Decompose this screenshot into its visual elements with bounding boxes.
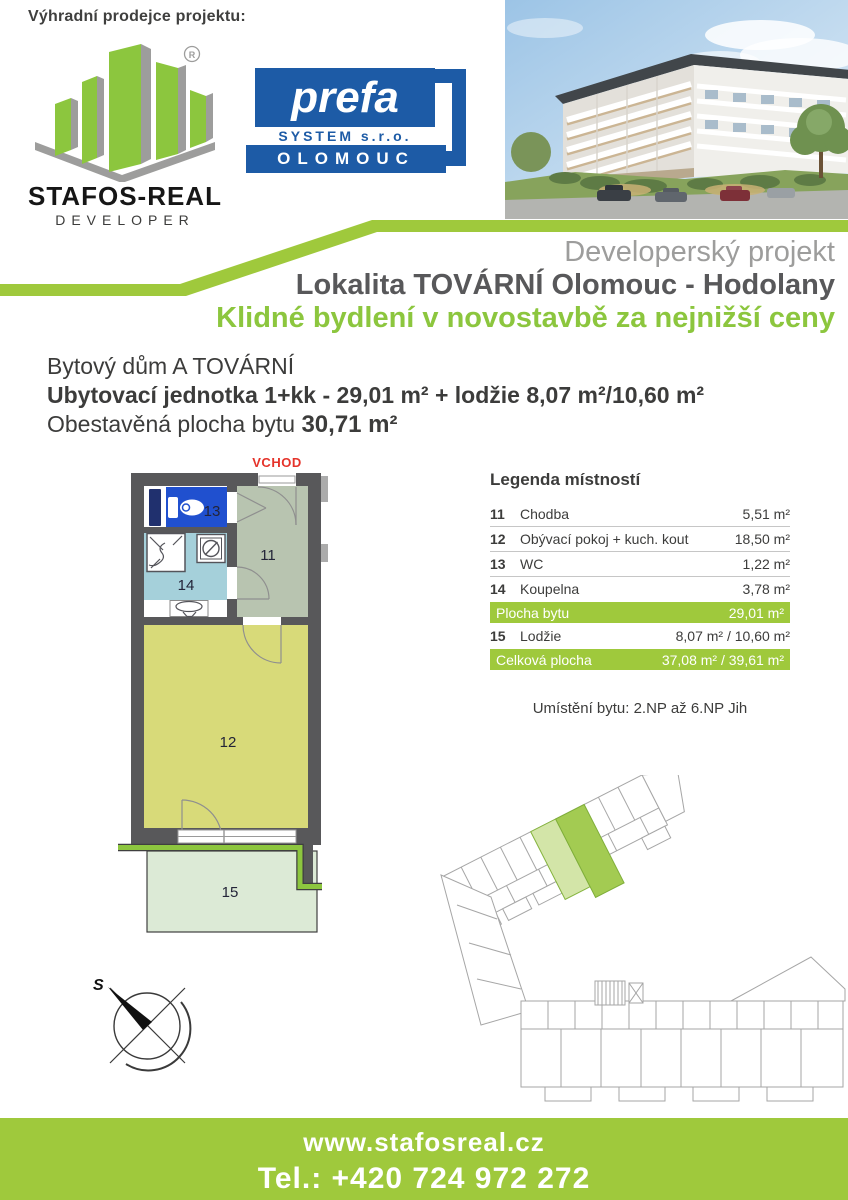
room-12-living [144, 625, 308, 828]
entry-door-frame [259, 476, 295, 483]
room-legend: Legenda místností 11 Chodba 5,51 m² 12 O… [490, 470, 790, 671]
legend-summary-total-area: Celková plocha 37,08 m² / 39,61 m² [490, 649, 790, 670]
boiler-icon [197, 535, 225, 563]
legend-row-15: 15 Lodžie 8,07 m² / 10,60 m² [490, 624, 790, 648]
placement-line: Umístění bytu: 2.NP až 6.NP Jih [490, 700, 790, 717]
phone-text: Tel.: +420 724 972 272 [0, 1162, 848, 1196]
enclosed-area-label: Obestavěná plocha bytu [47, 411, 295, 437]
title-block: Developerský projekt Lokalita TOVÁRNÍ Ol… [135, 236, 835, 335]
site-plan-lower-wing [521, 957, 845, 1101]
enclosed-area-line: Obestavěná plocha bytu 30,71 m² [47, 410, 704, 439]
legend-summary-apartment-area: Plocha bytu 29,01 m² [490, 602, 790, 623]
location-title: Lokalita TOVÁRNÍ Olomouc - Hodolany [135, 269, 835, 302]
unit-info-block: Bytový dům A TOVÁRNÍ Ubytovací jednotka … [47, 352, 704, 439]
legend-row-13: 13 WC 1,22 m² [490, 552, 790, 576]
legend-row-11: 11 Chodba 5,51 m² [490, 502, 790, 526]
room-label-14: 14 [178, 577, 195, 594]
unit-line: Ubytovací jednotka 1+kk - 29,01 m² + lod… [47, 381, 704, 410]
website-text: www.stafosreal.cz [0, 1127, 848, 1158]
compass-north-label: S [93, 977, 104, 994]
room-label-11: 11 [260, 547, 276, 564]
sink-icon [170, 601, 208, 617]
footer-contact-band: www.stafosreal.cz Tel.: +420 724 972 272 [0, 1118, 848, 1200]
room-label-15: 15 [222, 884, 239, 901]
building-name-line: Bytový dům A TOVÁRNÍ [47, 352, 704, 381]
apartment-floor-plan: VCHOD [113, 448, 337, 960]
shaft [149, 489, 161, 526]
stairwell [595, 981, 643, 1005]
room-label-13: 13 [204, 503, 221, 520]
flyer-page: Výhradní prodejce projektu: R STAFOS-REA… [0, 0, 848, 1200]
enclosed-area-value: 30,71 m² [301, 411, 397, 438]
legend-row-12: 12 Obývací pokoj + kuch. kout 18,50 m² [490, 527, 790, 551]
french-window [178, 830, 296, 843]
shower-icon [147, 534, 185, 572]
legend-title: Legenda místností [490, 470, 790, 490]
entrance-label: VCHOD [252, 455, 301, 470]
project-type-title: Developerský projekt [135, 236, 835, 269]
building-site-plan [433, 775, 848, 1105]
compass-north-icon: S [85, 960, 210, 1080]
room-label-12: 12 [220, 734, 237, 751]
legend-row-14: 14 Koupelna 3,78 m² [490, 577, 790, 601]
slogan-title: Klidné bydlení v novostavbě za nejnižší … [135, 302, 835, 335]
